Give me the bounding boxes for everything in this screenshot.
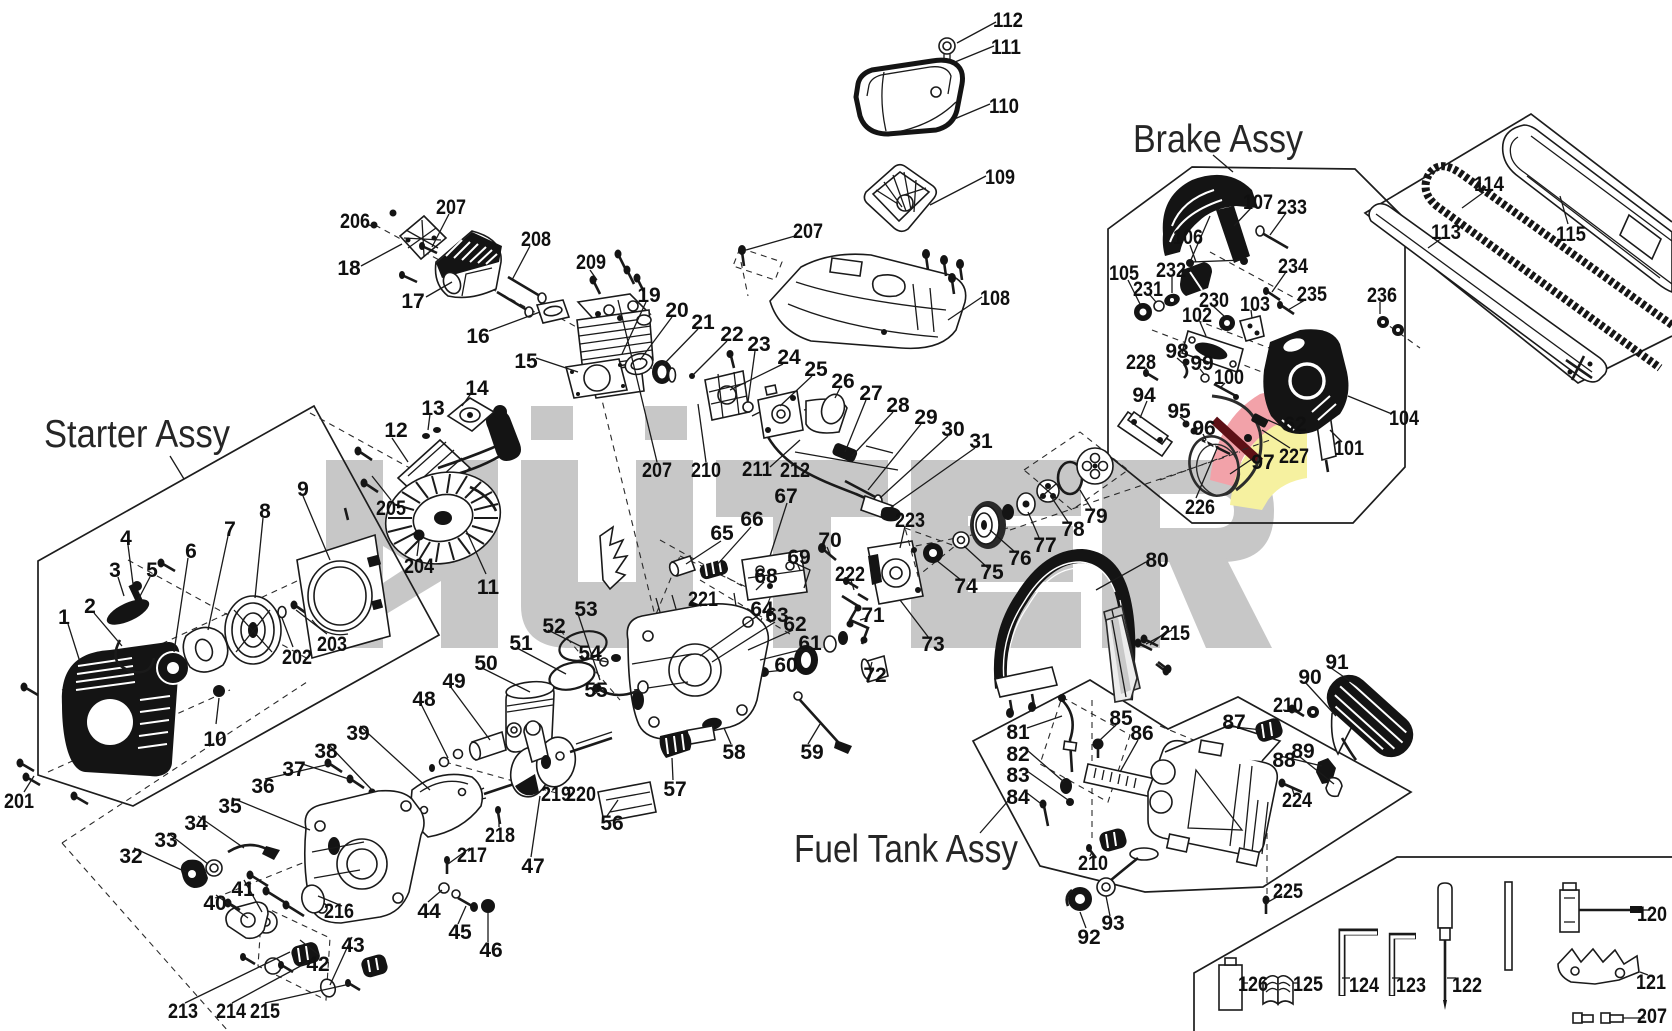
svg-text:67: 67	[774, 485, 797, 508]
svg-text:98: 98	[1165, 340, 1189, 363]
svg-text:62: 62	[1283, 413, 1306, 436]
svg-text:212: 212	[780, 459, 810, 482]
svg-text:223: 223	[895, 509, 925, 532]
svg-text:80: 80	[1145, 549, 1168, 572]
svg-text:84: 84	[1006, 786, 1030, 809]
svg-text:108: 108	[980, 287, 1010, 310]
svg-text:12: 12	[384, 419, 407, 442]
svg-text:49: 49	[442, 670, 465, 693]
svg-text:73: 73	[921, 633, 944, 656]
svg-text:26: 26	[831, 370, 854, 393]
svg-text:203: 203	[317, 633, 347, 656]
svg-text:66: 66	[740, 508, 763, 531]
svg-text:103: 103	[1240, 293, 1270, 316]
svg-text:204: 204	[404, 555, 434, 578]
svg-text:210: 210	[691, 459, 721, 482]
svg-text:115: 115	[1556, 223, 1586, 246]
svg-text:208: 208	[521, 228, 551, 251]
svg-text:40: 40	[203, 892, 226, 915]
svg-text:33: 33	[154, 829, 177, 852]
svg-text:225: 225	[1273, 880, 1303, 903]
svg-text:82: 82	[1006, 743, 1029, 766]
svg-text:3: 3	[109, 559, 121, 582]
svg-text:109: 109	[985, 166, 1015, 189]
svg-text:220: 220	[566, 783, 596, 806]
svg-text:207: 207	[793, 220, 823, 243]
svg-text:47: 47	[521, 855, 544, 878]
svg-text:120: 120	[1637, 903, 1667, 926]
svg-text:9: 9	[297, 478, 309, 501]
svg-text:113: 113	[1431, 221, 1461, 244]
svg-text:27: 27	[859, 382, 882, 405]
svg-text:96: 96	[1192, 417, 1215, 440]
svg-text:Fuel Tank Assy: Fuel Tank Assy	[794, 828, 1018, 871]
svg-text:107: 107	[1243, 191, 1273, 214]
svg-text:216: 216	[324, 900, 354, 923]
svg-text:210: 210	[1273, 694, 1303, 717]
svg-text:44: 44	[417, 900, 441, 923]
svg-text:114: 114	[1474, 173, 1504, 196]
svg-text:37: 37	[282, 758, 305, 781]
svg-text:39: 39	[346, 722, 369, 745]
svg-text:75: 75	[980, 561, 1004, 584]
svg-text:72: 72	[863, 664, 886, 687]
svg-text:1: 1	[58, 606, 70, 629]
svg-text:Starter Assy: Starter Assy	[44, 413, 230, 456]
svg-text:5: 5	[146, 559, 158, 582]
svg-text:99: 99	[1190, 352, 1213, 375]
svg-text:91: 91	[1325, 651, 1349, 674]
svg-text:56: 56	[600, 812, 623, 835]
svg-text:121: 121	[1636, 971, 1666, 994]
svg-text:95: 95	[1167, 400, 1191, 423]
svg-text:89: 89	[1291, 740, 1314, 763]
svg-text:71: 71	[861, 604, 885, 627]
svg-text:70: 70	[818, 529, 841, 552]
svg-text:104: 104	[1389, 407, 1419, 430]
svg-text:68: 68	[754, 565, 778, 588]
svg-text:207: 207	[436, 196, 466, 219]
svg-text:4: 4	[120, 527, 132, 550]
svg-text:21: 21	[691, 311, 715, 334]
svg-text:77: 77	[1033, 534, 1056, 557]
svg-text:24: 24	[777, 346, 801, 369]
svg-text:210: 210	[1078, 852, 1108, 875]
svg-text:83: 83	[1006, 764, 1029, 787]
svg-text:234: 234	[1278, 255, 1308, 278]
svg-text:43: 43	[341, 934, 364, 957]
svg-text:57: 57	[663, 778, 686, 801]
svg-text:235: 235	[1297, 283, 1327, 306]
svg-text:124: 124	[1349, 974, 1379, 997]
svg-text:7: 7	[224, 518, 236, 541]
svg-text:123: 123	[1396, 974, 1426, 997]
svg-text:46: 46	[479, 939, 502, 962]
svg-text:20: 20	[665, 299, 688, 322]
svg-text:74: 74	[954, 575, 978, 598]
svg-text:236: 236	[1367, 284, 1397, 307]
svg-text:25: 25	[804, 358, 828, 381]
svg-text:23: 23	[747, 333, 770, 356]
svg-text:61: 61	[798, 632, 822, 655]
svg-text:222: 222	[835, 563, 865, 586]
svg-text:38: 38	[314, 740, 338, 763]
svg-text:52: 52	[542, 615, 565, 638]
svg-text:13: 13	[421, 397, 444, 420]
svg-text:6: 6	[185, 540, 197, 563]
svg-text:30: 30	[941, 418, 964, 441]
svg-text:102: 102	[1182, 304, 1212, 327]
svg-text:214: 214	[216, 1000, 246, 1023]
svg-text:126: 126	[1238, 973, 1268, 996]
svg-text:19: 19	[637, 284, 660, 307]
svg-text:201: 201	[4, 790, 34, 813]
svg-text:90: 90	[1298, 666, 1321, 689]
svg-text:45: 45	[448, 921, 472, 944]
svg-text:228: 228	[1126, 351, 1156, 374]
svg-text:65: 65	[710, 522, 734, 545]
svg-text:215: 215	[1160, 622, 1190, 645]
svg-text:Brake Assy: Brake Assy	[1133, 118, 1303, 161]
svg-text:29: 29	[914, 406, 937, 429]
svg-text:14: 14	[465, 377, 489, 400]
svg-text:60: 60	[774, 654, 797, 677]
svg-text:86: 86	[1130, 722, 1153, 745]
svg-text:17: 17	[401, 290, 424, 313]
svg-text:78: 78	[1061, 518, 1085, 541]
svg-text:55: 55	[584, 679, 608, 702]
svg-text:58: 58	[722, 741, 746, 764]
svg-text:111: 111	[991, 36, 1021, 59]
svg-text:87: 87	[1222, 711, 1245, 734]
svg-text:207: 207	[1637, 1005, 1667, 1028]
svg-text:232: 232	[1156, 259, 1186, 282]
svg-text:81: 81	[1006, 721, 1030, 744]
svg-text:211: 211	[742, 458, 772, 481]
svg-text:59: 59	[800, 741, 823, 764]
svg-text:94: 94	[1132, 384, 1156, 407]
svg-text:213: 213	[168, 1000, 198, 1023]
svg-text:8: 8	[259, 500, 271, 523]
svg-text:69: 69	[787, 546, 810, 569]
svg-text:2: 2	[84, 595, 96, 618]
svg-text:51: 51	[509, 632, 533, 655]
svg-text:206: 206	[340, 210, 370, 233]
svg-text:76: 76	[1008, 547, 1031, 570]
svg-text:28: 28	[886, 394, 910, 417]
svg-text:93: 93	[1101, 912, 1124, 935]
svg-text:110: 110	[989, 95, 1019, 118]
svg-text:18: 18	[337, 257, 361, 280]
svg-text:125: 125	[1293, 973, 1323, 996]
svg-text:35: 35	[218, 795, 242, 818]
svg-text:42: 42	[306, 953, 329, 976]
svg-text:122: 122	[1452, 974, 1482, 997]
svg-text:101: 101	[1334, 437, 1364, 460]
svg-text:10: 10	[203, 728, 226, 751]
svg-text:32: 32	[119, 845, 142, 868]
svg-text:50: 50	[474, 652, 497, 675]
svg-text:106: 106	[1173, 226, 1203, 249]
svg-text:79: 79	[1084, 505, 1107, 528]
svg-text:31: 31	[969, 430, 993, 453]
svg-text:209: 209	[576, 251, 606, 274]
svg-text:227: 227	[1279, 445, 1309, 468]
svg-text:53: 53	[574, 598, 597, 621]
svg-text:233: 233	[1277, 196, 1307, 219]
svg-text:11: 11	[477, 576, 500, 599]
svg-text:34: 34	[184, 812, 208, 835]
svg-text:112: 112	[993, 9, 1023, 32]
svg-text:54: 54	[578, 642, 602, 665]
svg-text:207: 207	[642, 459, 672, 482]
svg-text:97: 97	[1251, 451, 1274, 474]
svg-text:224: 224	[1282, 789, 1312, 812]
svg-text:48: 48	[412, 688, 436, 711]
svg-text:92: 92	[1077, 926, 1100, 949]
svg-text:36: 36	[251, 775, 274, 798]
svg-text:15: 15	[514, 350, 538, 373]
svg-text:16: 16	[466, 325, 489, 348]
svg-text:41: 41	[231, 878, 255, 901]
svg-text:221: 221	[688, 588, 718, 611]
svg-text:226: 226	[1185, 496, 1215, 519]
svg-text:202: 202	[282, 646, 312, 669]
svg-text:205: 205	[376, 497, 406, 520]
svg-text:215: 215	[250, 1000, 280, 1023]
svg-text:100: 100	[1214, 366, 1244, 389]
svg-text:218: 218	[485, 824, 515, 847]
svg-text:217: 217	[457, 844, 487, 867]
svg-text:22: 22	[720, 323, 743, 346]
